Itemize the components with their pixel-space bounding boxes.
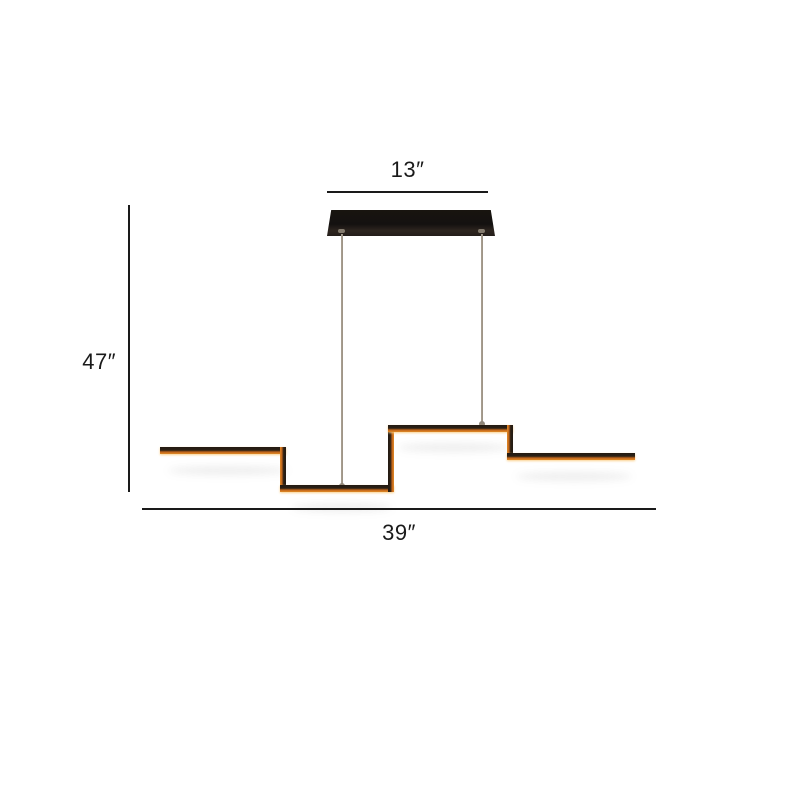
canopy-screw-left (338, 229, 345, 233)
ceiling-canopy (327, 210, 495, 236)
canopy-screw-right (478, 229, 485, 233)
canopy-width-dimension-line (327, 191, 488, 193)
segment-shadow-top (398, 443, 510, 452)
led-bar-segment-right (507, 453, 635, 460)
led-bar-segment-bottom (280, 485, 394, 492)
suspension-cable-right (481, 234, 483, 426)
hanging-height-label: 47″ (48, 350, 116, 374)
led-bar-segment-top (388, 425, 513, 432)
segment-shadow-right (516, 472, 632, 481)
led-bar-segment-left (160, 447, 286, 454)
length-dimension-line (142, 508, 656, 510)
dimension-diagram: 13″ 47″ 39″ (0, 0, 800, 800)
height-dimension-line (128, 205, 130, 492)
suspension-cable-left (341, 234, 343, 488)
canopy-width-label: 13″ (327, 158, 488, 182)
segment-shadow-left (168, 466, 288, 475)
fixture-length-label: 39″ (142, 521, 656, 545)
led-bar-riser-2 (388, 425, 394, 492)
